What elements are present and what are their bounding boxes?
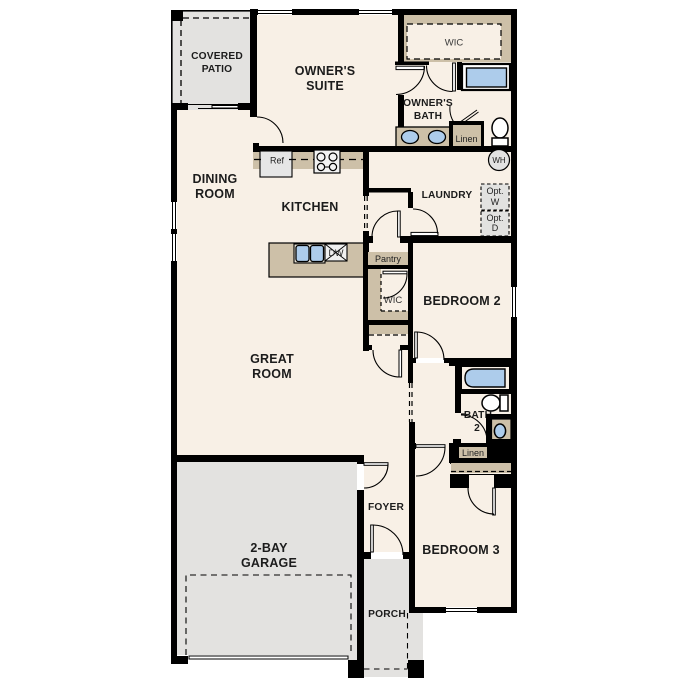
svg-text:WH: WH [492, 156, 506, 165]
svg-text:COVERED: COVERED [191, 51, 243, 62]
svg-text:SUITE: SUITE [306, 79, 344, 93]
svg-text:Linen: Linen [455, 134, 477, 144]
svg-text:Opt.: Opt. [486, 186, 503, 196]
svg-text:D: D [492, 223, 499, 233]
svg-text:PORCH: PORCH [368, 609, 406, 620]
svg-text:OWNER'S: OWNER'S [295, 64, 356, 78]
svg-text:OWNER'S: OWNER'S [403, 98, 453, 109]
svg-text:KITCHEN: KITCHEN [282, 200, 339, 214]
svg-text:Linen: Linen [462, 448, 484, 458]
svg-text:DINING: DINING [193, 172, 238, 186]
svg-text:Ref: Ref [270, 156, 285, 166]
svg-text:Pantry: Pantry [375, 254, 402, 264]
svg-text:DW: DW [329, 248, 344, 258]
svg-text:WIC: WIC [445, 38, 464, 49]
svg-text:LAUNDRY: LAUNDRY [422, 190, 473, 201]
svg-text:GARAGE: GARAGE [241, 556, 297, 570]
svg-text:PATIO: PATIO [202, 64, 233, 75]
svg-text:BATH: BATH [414, 111, 442, 122]
svg-text:BEDROOM 2: BEDROOM 2 [423, 294, 501, 308]
svg-text:W: W [491, 197, 500, 207]
svg-text:2: 2 [474, 423, 480, 434]
svg-text:ROOM: ROOM [252, 367, 292, 381]
svg-text:Opt.: Opt. [486, 213, 503, 223]
svg-text:2-BAY: 2-BAY [250, 541, 288, 555]
svg-text:WIC: WIC [384, 295, 403, 306]
svg-text:ROOM: ROOM [195, 187, 235, 201]
svg-text:BEDROOM 3: BEDROOM 3 [422, 543, 500, 557]
svg-text:FOYER: FOYER [368, 502, 405, 513]
svg-text:GREAT: GREAT [250, 352, 294, 366]
